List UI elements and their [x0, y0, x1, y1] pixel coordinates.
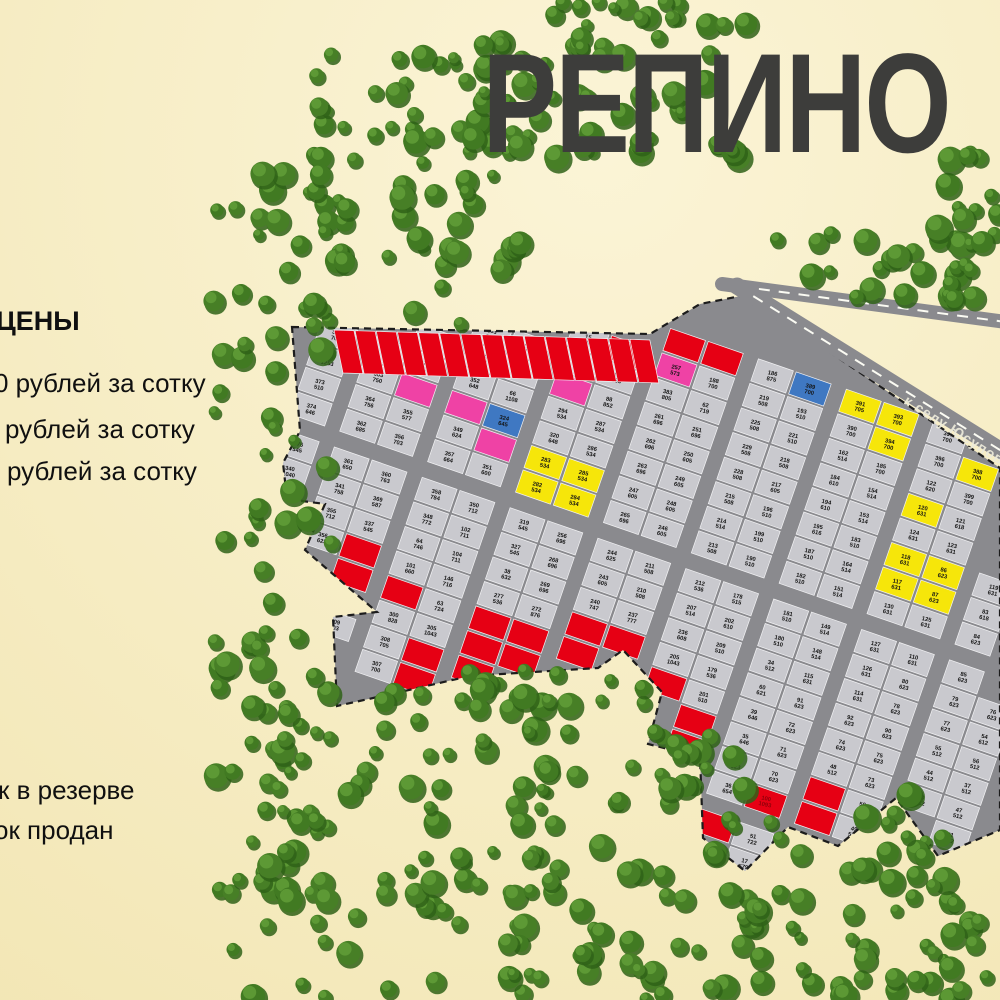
- masterplan-canvas: 3717033651253373510374646376545340104034…: [0, 0, 1000, 1000]
- legend-price-line: рублей за сотку: [7, 456, 197, 486]
- legend-status-reserved: к в резерве: [0, 775, 135, 805]
- legend-heading: ЦЕНЫ: [0, 306, 80, 336]
- legend-status-sold: ок продан: [0, 815, 113, 845]
- page-title: РЕПИНО: [482, 24, 949, 183]
- legend-price-line: 0 рублей за сотку: [0, 368, 206, 398]
- legend-price-line: рублей за сотку: [5, 414, 195, 444]
